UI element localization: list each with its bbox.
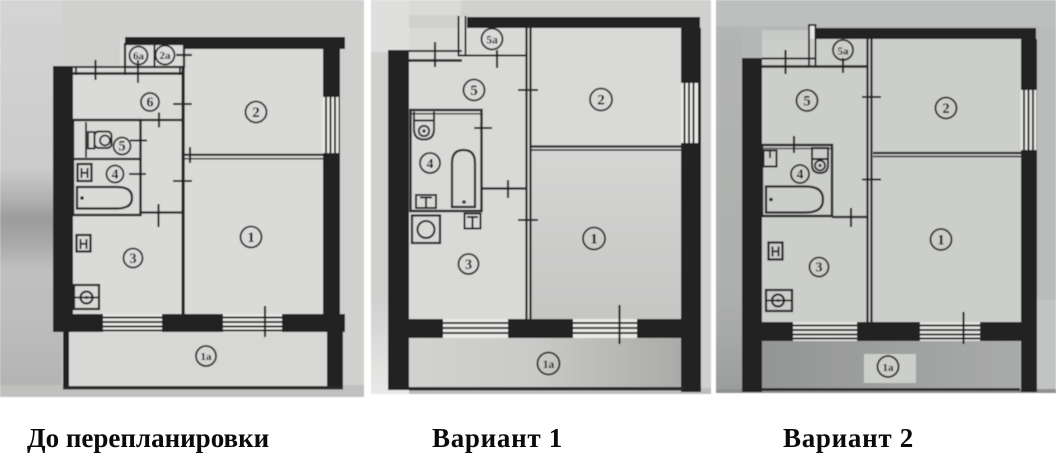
svg-text:1: 1 [590,232,598,248]
svg-text:1а: 1а [883,362,895,374]
svg-text:5а: 5а [838,46,850,58]
svg-text:6а: 6а [133,51,145,63]
svg-text:1а: 1а [201,351,213,363]
svg-text:Вариант 2: Вариант 2 [783,423,914,453]
svg-text:До перепланировки: До перепланировки [27,423,269,453]
svg-text:2а: 2а [160,50,172,62]
svg-text:3: 3 [816,261,823,276]
svg-text:1: 1 [247,230,255,246]
svg-text:3: 3 [465,257,472,273]
svg-text:2: 2 [942,101,949,117]
svg-text:6: 6 [147,96,154,111]
svg-text:4: 4 [427,156,434,171]
svg-text:2: 2 [597,93,605,109]
svg-text:1а: 1а [543,359,555,371]
svg-text:5: 5 [803,94,810,110]
svg-text:5: 5 [470,83,478,99]
svg-text:5а: 5а [486,35,498,47]
svg-text:Вариант 1: Вариант 1 [432,423,563,453]
svg-text:1: 1 [937,233,944,249]
svg-text:5: 5 [118,139,125,155]
svg-text:2: 2 [252,105,260,121]
svg-text:4: 4 [797,166,804,181]
svg-text:4: 4 [112,167,119,182]
svg-text:3: 3 [129,251,136,267]
